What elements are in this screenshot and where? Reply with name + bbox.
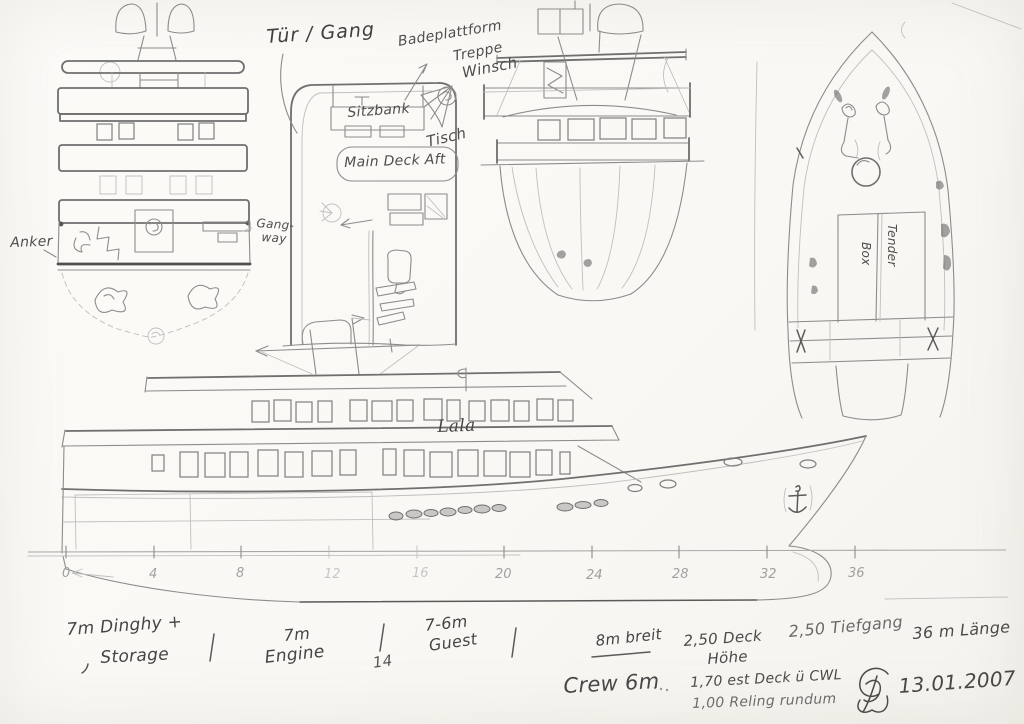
scale-tick-0: 0 xyxy=(62,566,70,581)
engine-length-note: 7m xyxy=(283,626,311,644)
boat-name-label: Lala xyxy=(437,418,476,436)
station-14-note: 14 xyxy=(372,653,394,671)
scale-tick-4: 4 xyxy=(149,567,157,582)
scale-tick-32: 32 xyxy=(760,567,777,582)
signature-monogram xyxy=(858,668,888,712)
yacht-sketch-page: Tür / Gang Badeplattform Treppe Winsch S… xyxy=(0,0,1024,724)
anker-label: Anker xyxy=(10,235,53,250)
stern-view-drawing xyxy=(44,3,252,337)
side-profile-drawing xyxy=(62,315,866,602)
scale-tick-20: 20 xyxy=(495,567,512,582)
tender-label: Tender xyxy=(886,224,898,267)
scale-tick-12: 12 xyxy=(324,567,341,582)
bow-elevation-drawing xyxy=(481,1,704,301)
paper-marks xyxy=(755,3,1021,330)
scale-tick-8: 8 xyxy=(236,566,244,581)
dinghy-note-line2: Storage xyxy=(100,646,169,667)
deck-height-note-line2: Höhe xyxy=(707,649,748,667)
bow-top-view-drawing xyxy=(787,22,954,420)
crew-note: Crew 6m xyxy=(563,671,660,697)
sitzbank-label: Sitzbank xyxy=(347,102,410,120)
box-label: Box xyxy=(860,242,872,266)
scale-tick-36: 36 xyxy=(848,566,865,581)
aft-deck-plan-drawing xyxy=(281,54,458,346)
scale-tick-24: 24 xyxy=(586,568,603,583)
main-deck-aft-label: Main Deck Aft xyxy=(344,152,446,170)
gangway-label-line2: way xyxy=(261,231,287,245)
scale-tick-16: 16 xyxy=(412,566,429,581)
scale-tick-28: 28 xyxy=(672,567,689,582)
